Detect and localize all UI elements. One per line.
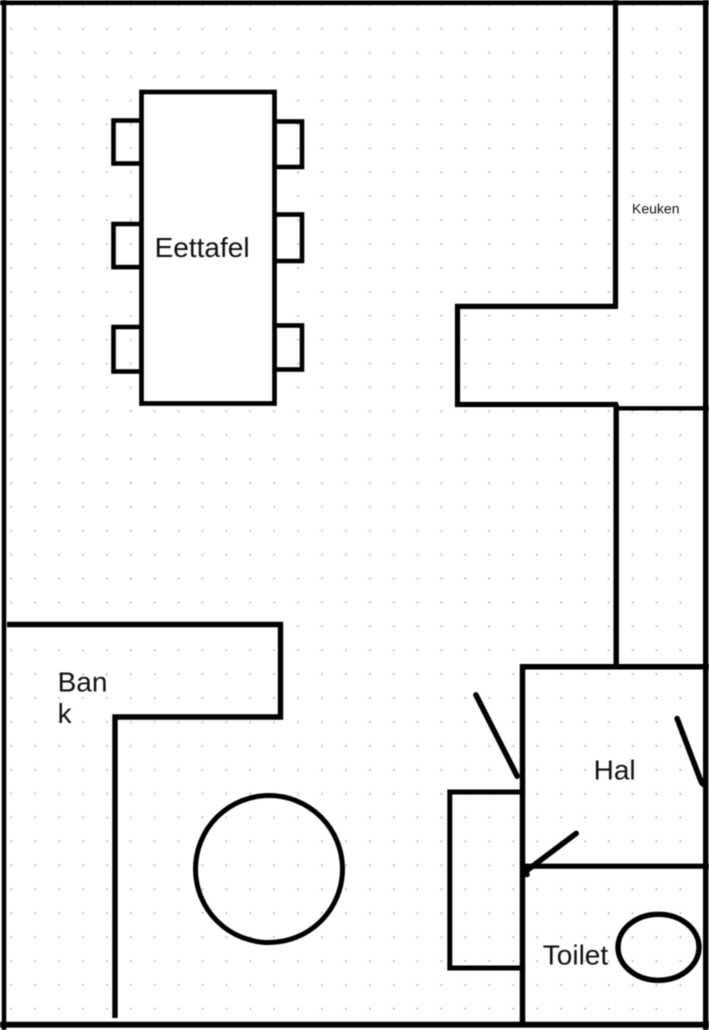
svg-text:Toilet: Toilet xyxy=(543,940,609,971)
svg-text:k: k xyxy=(58,698,73,729)
svg-text:Ban: Ban xyxy=(58,667,108,698)
svg-text:Keuken: Keuken xyxy=(632,201,679,217)
svg-text:Hal: Hal xyxy=(594,755,636,786)
svg-text:Eettafel: Eettafel xyxy=(155,232,250,263)
